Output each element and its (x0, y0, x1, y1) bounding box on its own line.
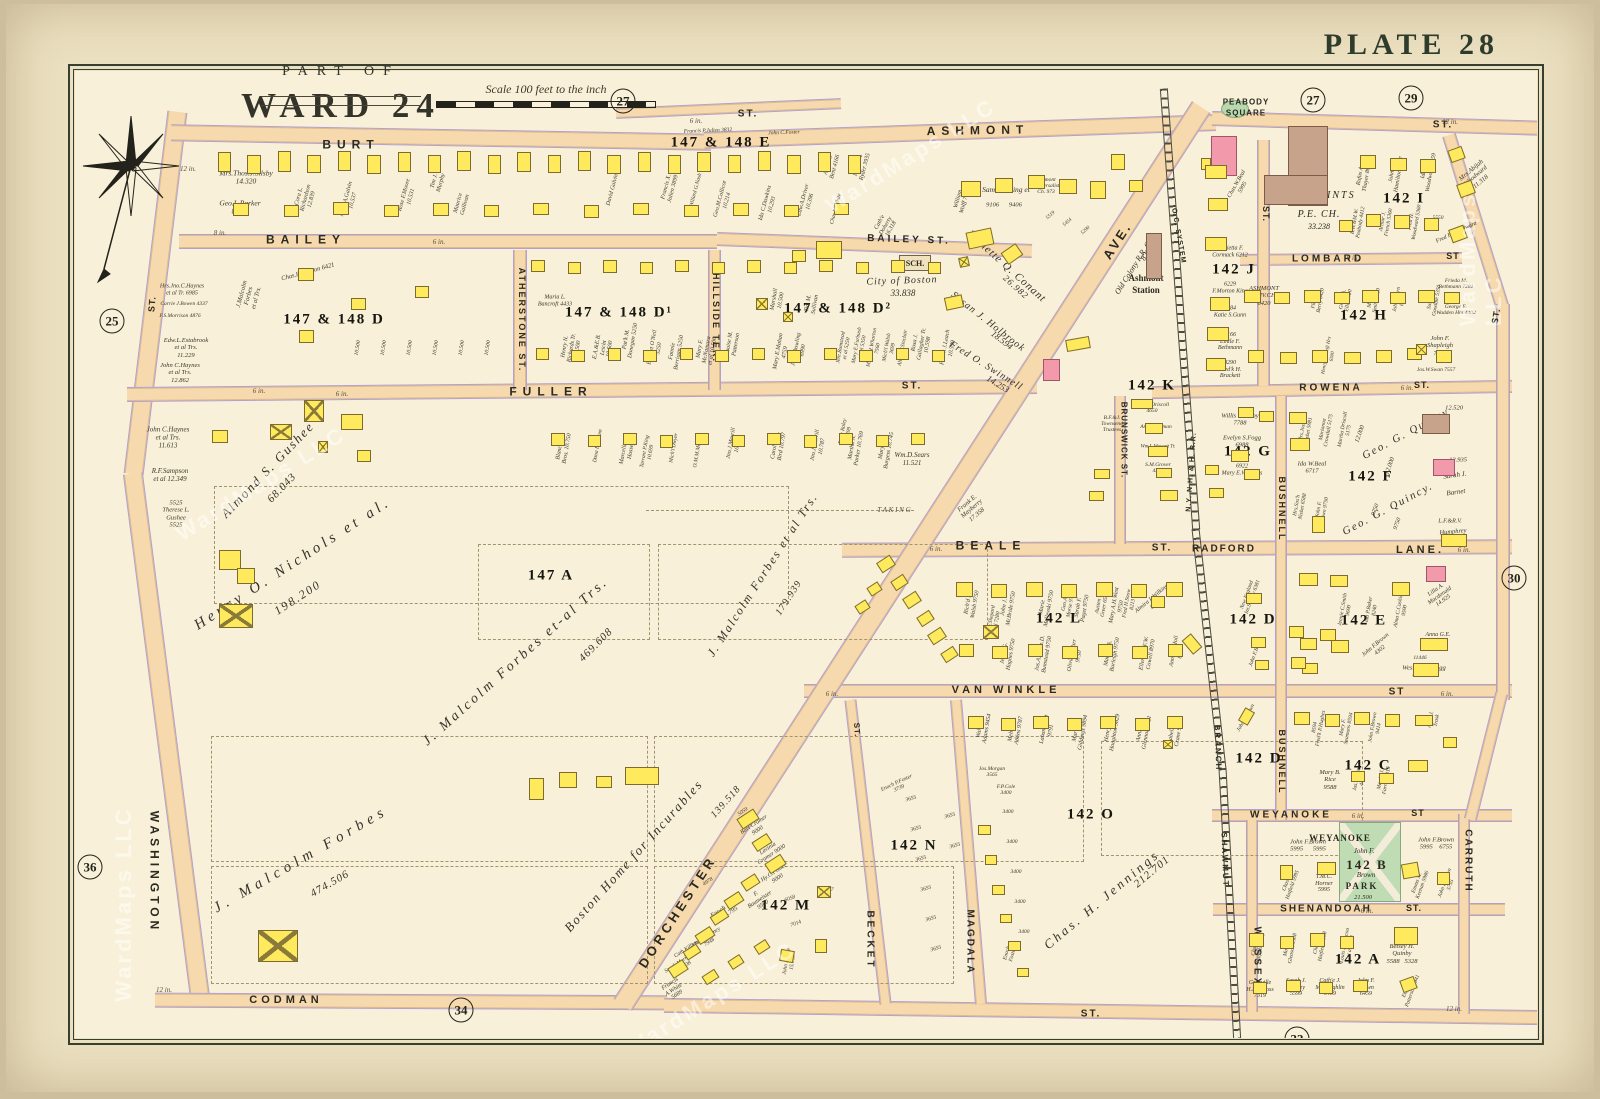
house-footprint (787, 350, 801, 363)
property-owner-label: Mrs.Thos.J.Silsby 14.320 (219, 170, 273, 187)
block-number-label: 142 K (1128, 378, 1176, 395)
street-label: BURT (322, 138, 379, 151)
house-footprint (1394, 215, 1410, 229)
house-footprint (1166, 582, 1183, 597)
house-footprint (1062, 646, 1078, 659)
house-footprint (747, 260, 761, 273)
house-footprint (1028, 644, 1043, 657)
house-footprint (1067, 718, 1082, 731)
property-owner-label: Betsey H. Quinby 5588 5328 (1387, 943, 1418, 965)
block-number-label: 142 N (890, 838, 937, 855)
house-footprint (1205, 237, 1227, 251)
house-footprint (1151, 596, 1165, 608)
property-owner-label: Carrie J.Bowen 4337 (160, 301, 207, 307)
property-owner-label: Rose F.Moore 10.531 (397, 178, 419, 214)
pipe-size-label: 12 in. (156, 987, 172, 995)
weyanoke-park-owner2: Brown (1338, 872, 1394, 880)
street-label: MAGDALA (964, 909, 975, 974)
house-footprint (784, 205, 799, 217)
house-footprint (668, 155, 681, 174)
house-footprint (1001, 718, 1016, 731)
house-footprint (816, 241, 842, 259)
subdivision-line (658, 544, 988, 640)
house-footprint (529, 778, 544, 800)
house-footprint (911, 433, 925, 445)
house-footprint (1392, 582, 1410, 596)
house-footprint (1156, 468, 1172, 478)
house-footprint (733, 203, 749, 216)
pipe-size-label: 6 in. (930, 546, 942, 554)
house-footprint (1340, 936, 1354, 949)
street-label: ROWENA (1299, 382, 1363, 393)
house-footprint (1033, 716, 1049, 729)
house-footprint (367, 155, 381, 174)
pipe-size-label: T A K I N G (877, 507, 910, 515)
house-footprint (1408, 760, 1428, 772)
house-footprint (752, 348, 765, 360)
property-owner-label: John C.Foster (768, 129, 800, 136)
house-footprint (1205, 165, 1227, 179)
house-footprint (1289, 626, 1304, 638)
map-title-ward: WARD 24 (241, 86, 441, 126)
outbuilding-footprint (756, 298, 768, 310)
property-owner-label: 12.000 (1354, 424, 1367, 443)
house-footprint (660, 435, 673, 448)
house-footprint (985, 855, 997, 865)
house-footprint (1089, 491, 1104, 501)
outbuilding-footprint (258, 930, 298, 962)
house-footprint (571, 350, 585, 362)
house-footprint (398, 152, 411, 172)
house-footprint (1160, 490, 1178, 501)
house-footprint (1385, 714, 1400, 727)
outbuilding-footprint (270, 424, 292, 440)
house-footprint (758, 151, 771, 171)
house-footprint (338, 151, 351, 171)
street-label: SHENANDOAH (1280, 903, 1372, 914)
street-label: BAILEY (266, 233, 346, 246)
house-footprint (1299, 573, 1318, 586)
street-label: ST. (1081, 1008, 1101, 1019)
property-owner-label: 10.500 (380, 340, 389, 356)
house-footprint (784, 262, 797, 274)
pipe-size-label: 6 in. (826, 691, 838, 699)
property-owner-label: L.F.&R.V. (1438, 519, 1461, 526)
house-footprint (278, 151, 291, 172)
house-footprint (956, 582, 973, 597)
property-owner-label: Edw.L.Estabrook et al Trs. 11.229 (164, 337, 208, 359)
house-footprint (1390, 158, 1407, 171)
house-footprint (940, 645, 959, 662)
house-footprint (1145, 423, 1163, 434)
property-owner-label: John F.Brown 4302 (1361, 632, 1395, 664)
house-footprint (728, 155, 741, 173)
property-owner-label: Jos.W.Swan 7557 (1417, 367, 1455, 373)
house-footprint (891, 260, 905, 273)
house-footprint (992, 646, 1008, 659)
house-footprint (588, 435, 601, 447)
house-footprint (640, 262, 653, 274)
estate-owner-label: Chas. H. Jennings (1041, 847, 1162, 952)
house-footprint (1344, 352, 1361, 364)
house-footprint (697, 152, 711, 172)
watermark-text: WardMaps LLC (1455, 192, 1507, 326)
house-footprint (839, 433, 853, 445)
house-footprint (819, 260, 833, 272)
estate-owner-label: 33.838 (891, 288, 916, 298)
street-label: ST. (1261, 206, 1271, 222)
outbuilding-footprint (958, 256, 970, 268)
property-owner-label: Francis X. Julien 3899 (660, 173, 680, 204)
house-footprint (1418, 290, 1435, 303)
house-footprint (1310, 933, 1325, 947)
house-footprint (787, 155, 801, 174)
block-number-label: 147 A (528, 568, 574, 585)
house-footprint (643, 350, 657, 362)
house-footprint (623, 433, 637, 445)
house-footprint (1319, 982, 1333, 994)
house-footprint (1351, 771, 1365, 782)
property-owner-label: Wm.D.Sears 11.521 (895, 452, 930, 468)
house-footprint (1280, 936, 1294, 949)
house-footprint (1167, 716, 1183, 729)
house-footprint (1255, 660, 1269, 670)
property-owner-label: John F.Brown 5995 6755 (1418, 837, 1454, 852)
outbuilding-footprint (983, 625, 999, 639)
house-footprint (1354, 712, 1370, 725)
pipe-size-label: 6 in. (1441, 691, 1453, 699)
house-footprint (351, 298, 366, 310)
property-owner-label: John C.Haynes et al Trs. 12.862 (160, 362, 200, 384)
property-owner-label: Hrs.Sus'h Nisbet 6588 (1292, 492, 1309, 520)
property-owner-label: F.P.Cole 3400 (997, 784, 1015, 796)
house-footprint (715, 350, 729, 362)
weyanoke-park-label2: PARK (1334, 882, 1390, 892)
house-footprint (307, 155, 321, 173)
street-label: LANE. (1396, 544, 1444, 556)
house-footprint (1362, 290, 1379, 303)
house-footprint (1317, 862, 1336, 875)
street-label: WEYANOKE (1250, 809, 1332, 820)
property-owner-label: 10.500 (432, 340, 441, 356)
property-owner-label: Tarrant P.King 10.699 (639, 435, 657, 469)
street-label: BRANCH (1212, 725, 1223, 772)
house-footprint (1249, 933, 1264, 947)
house-footprint (488, 155, 501, 174)
house-footprint (384, 205, 399, 217)
house-footprint (633, 203, 649, 215)
house-footprint (1443, 737, 1457, 748)
weyanoke-park-area: 21.500 (1338, 894, 1388, 901)
house-footprint (603, 260, 617, 273)
house-footprint (932, 350, 945, 362)
house-footprint (536, 348, 549, 360)
atlas-map-sheet: { "plate": { "title": "PLATE 28" }, "tit… (0, 0, 1600, 1099)
house-footprint (991, 584, 1007, 598)
street-label: ST. (1152, 542, 1172, 553)
house-footprint (1244, 290, 1261, 303)
house-footprint (548, 155, 561, 173)
house-footprint (1339, 220, 1353, 232)
scale-block: Scale 100 feet to the inch (436, 82, 656, 108)
pipe-size-label: 12 in. (1442, 119, 1458, 127)
bailey-street-roadway (179, 234, 717, 249)
property-owner-label: Ida W.Beal 6717 (1298, 461, 1327, 476)
house-footprint (1289, 412, 1307, 424)
property-owner-label: 3655 (915, 855, 927, 864)
property-owner-label: 10.500 (458, 340, 467, 356)
house-footprint (433, 203, 449, 216)
street-label: ST. (902, 380, 922, 391)
house-footprint (1415, 715, 1433, 726)
house-footprint (1420, 638, 1448, 651)
block-number-label: 147 & 148 D² (784, 301, 892, 318)
house-footprint (1132, 646, 1148, 659)
house-footprint (732, 435, 745, 447)
house-footprint (680, 348, 693, 360)
house-footprint (1111, 154, 1125, 170)
house-footprint (992, 885, 1005, 895)
house-footprint (995, 178, 1013, 193)
house-footprint (212, 430, 228, 443)
property-owner-label: R.F.Sampson et al 12.349 (152, 468, 188, 484)
public-building-footprint (1146, 233, 1162, 279)
house-footprint (1000, 914, 1012, 923)
map-title-block: PART OF WARD 24 (241, 64, 441, 126)
house-footprint (218, 152, 231, 172)
pipe-size-label: 6 in. (336, 391, 348, 399)
street-label: BEALE (956, 539, 1027, 552)
street-label: ST. (1406, 903, 1422, 913)
street-label: ST. (851, 722, 861, 737)
house-footprint (299, 330, 314, 343)
taking-line (646, 510, 914, 511)
house-footprint (1413, 663, 1439, 677)
block-number-label: 147 & 148 D (283, 312, 385, 329)
house-footprint (551, 433, 565, 446)
house-footprint (1400, 861, 1419, 879)
house-footprint (896, 348, 909, 360)
street-label: RADFORD (1192, 543, 1256, 554)
house-footprint (1300, 638, 1317, 650)
estate-owner-label: Geo. G. Quincy. (1340, 480, 1435, 538)
scale-text: Scale 100 feet to the inch (436, 82, 656, 97)
house-footprint (415, 286, 429, 298)
house-footprint (848, 155, 861, 174)
property-owner-label: 10.500 (484, 340, 493, 356)
house-footprint (517, 152, 531, 172)
plate-number-title: PLATE 28 (1324, 28, 1499, 62)
house-footprint (1246, 593, 1262, 604)
house-footprint (1420, 159, 1436, 173)
house-footprint (876, 435, 889, 447)
house-footprint (1280, 352, 1297, 364)
house-footprint (1280, 865, 1293, 880)
property-owner-label: Lilla A. Macdonald 14.925 (1423, 580, 1457, 612)
house-footprint (1131, 399, 1153, 409)
adjacent-plate-ref-30: 30 (1502, 566, 1527, 591)
house-footprint (1061, 584, 1077, 598)
street-label: BUSHNELL (1277, 477, 1287, 542)
pipe-size-label: 8 in. (214, 230, 226, 238)
house-footprint (428, 155, 441, 173)
property-owner-label: 11446 (1413, 655, 1426, 661)
property-owner-label: David Galvin (606, 173, 621, 206)
house-footprint (638, 152, 651, 172)
block-number-label: 142 D (1229, 612, 1276, 629)
street-label: PEABODY (1223, 99, 1270, 108)
watermark-text: WardMaps LLC (111, 806, 137, 1001)
house-footprint (1231, 450, 1249, 462)
house-footprint (1437, 872, 1450, 885)
street-label: SHAWMUT (1219, 832, 1230, 888)
property-owner-label: Ida C.Dawkins 10.293 (758, 185, 780, 223)
outbuilding-footprint (783, 312, 793, 322)
house-footprint (333, 202, 349, 215)
east-street-roadway (1496, 304, 1510, 700)
street-label: ST (1411, 808, 1425, 818)
property-owner-label: Marianna Crowdall 5175 (1317, 413, 1335, 448)
house-footprint (1206, 358, 1226, 371)
property-owner-label: Mary B. Rice 9588 (1319, 769, 1340, 791)
house-footprint (219, 550, 241, 570)
street-label: ATHERSTONE ST. (517, 268, 527, 373)
pipe-size-label: 6 in. (690, 118, 702, 126)
property-owner-label: Alma C.Cushing 9500 (1393, 591, 1411, 629)
house-footprint (1205, 465, 1219, 475)
map-sheet-paper: PLATE 28 (6, 4, 1594, 1092)
property-owner-label: Martha Driscoll 5175 (1337, 411, 1355, 448)
house-footprint (1026, 582, 1043, 597)
house-footprint (1065, 336, 1091, 352)
house-footprint (247, 155, 261, 174)
property-owner-label: Willard G.Nash (689, 173, 704, 208)
house-footprint (818, 152, 831, 172)
house-footprint (357, 450, 371, 462)
brick-building-footprint (1043, 359, 1060, 381)
street-label: VAN WINKLE (952, 684, 1061, 696)
house-footprint (625, 767, 659, 785)
house-footprint (1320, 629, 1336, 641)
street-label: BECKET (864, 910, 875, 969)
house-footprint (607, 155, 621, 174)
house-footprint (1274, 292, 1290, 304)
property-owner-label: 5290 (1080, 226, 1091, 237)
property-owner-label: J.Malcolm Forbes et al Trs. (235, 280, 263, 312)
house-footprint (824, 348, 837, 360)
house-footprint (1379, 773, 1394, 784)
property-owner-label: Edw.A.Driver 10.396 (796, 183, 817, 218)
house-footprint (1331, 640, 1349, 653)
house-footprint (1441, 534, 1467, 547)
property-owner-label: 10.500 (354, 340, 363, 356)
house-footprint (1253, 982, 1267, 994)
block-number-label: 142 O (1067, 807, 1115, 824)
outbuilding-footprint (1416, 344, 1427, 355)
house-footprint (1008, 941, 1021, 951)
property-owner-label: John F.Brown 5995 5995 (1290, 839, 1326, 854)
house-footprint (1312, 350, 1328, 363)
house-footprint (1290, 438, 1310, 451)
house-footprint (1294, 712, 1310, 725)
outbuilding-footprint (219, 604, 253, 628)
house-footprint (859, 350, 873, 362)
house-footprint (1096, 582, 1113, 597)
subdivision-line (211, 736, 648, 862)
property-owner-label: Maurice Gallivan (453, 192, 471, 216)
property-owner-label: John C.Haynes et al Trs. 11.613 (147, 426, 190, 449)
house-footprint (1094, 469, 1110, 479)
property-owner-label: T.M.C. Horner 5995 (1315, 874, 1333, 894)
house-footprint (1291, 657, 1306, 669)
house-footprint (237, 568, 255, 584)
scale-bar (436, 101, 656, 108)
adjacent-plate-ref-33: 33 (1285, 1027, 1310, 1039)
house-footprint (767, 433, 781, 445)
adjacent-plate-ref-27: 27 (1301, 88, 1326, 113)
property-owner-label: 3400 (1003, 809, 1014, 815)
house-footprint (684, 205, 699, 217)
property-owner-label: Maria L. Bancroft 4433 (538, 294, 572, 307)
house-footprint (608, 348, 621, 361)
property-owner-label: 9106 9406 (986, 201, 1022, 208)
house-footprint (1129, 180, 1143, 192)
house-footprint (978, 825, 991, 835)
house-footprint (804, 435, 817, 448)
house-footprint (968, 716, 984, 729)
house-footprint (1208, 198, 1228, 211)
street-label: SQUARE (1226, 110, 1266, 119)
pipe-size-label: 6 in. (1361, 908, 1373, 916)
subdivision-line (654, 736, 1084, 862)
pipe-size-label: 6 in. (1401, 385, 1413, 393)
block-number-label: 142 D (1235, 751, 1282, 768)
property-owner-label: 12.520 (1445, 404, 1463, 411)
title-flourish (261, 96, 421, 106)
street-label: ST. (738, 108, 758, 119)
brick-building-footprint (1426, 566, 1446, 582)
property-owner-label: 3400 (1015, 899, 1026, 905)
house-footprint (1353, 980, 1368, 992)
house-footprint (1312, 516, 1325, 533)
pipe-size-label: 6 in. (1347, 255, 1359, 263)
street-label: ST. (1414, 380, 1430, 390)
street-label: FULLER (509, 385, 592, 398)
house-footprint (1259, 411, 1274, 422)
house-footprint (1325, 714, 1340, 727)
house-footprint (596, 776, 612, 788)
house-footprint (675, 260, 689, 272)
public-building-footprint (1264, 175, 1328, 205)
pipe-size-label: 6 in. (433, 239, 445, 247)
all-saints-church-label2: P.E. CH. (1286, 209, 1352, 220)
house-footprint (531, 260, 545, 272)
house-footprint (568, 262, 581, 274)
house-footprint (1028, 175, 1045, 189)
street-label: ST (1389, 686, 1406, 697)
property-owner-label: B.F.&J. Townsend Trustees (1101, 415, 1123, 433)
property-owner-label: 3400 (1007, 839, 1018, 845)
house-footprint (1436, 350, 1452, 363)
block-number-label: 147 & 148 D¹ (565, 305, 673, 322)
map-title-part-of: PART OF (241, 64, 441, 80)
weyanoke-park-owner: John F. (1336, 848, 1392, 856)
property-owner-label: 5454 (1062, 218, 1073, 229)
map-area: WEYANOKE John F. 142 B Brown PARK 21.500… (75, 71, 1537, 1038)
house-footprint (1131, 584, 1147, 598)
house-footprint (457, 151, 471, 171)
house-footprint (1017, 968, 1029, 977)
